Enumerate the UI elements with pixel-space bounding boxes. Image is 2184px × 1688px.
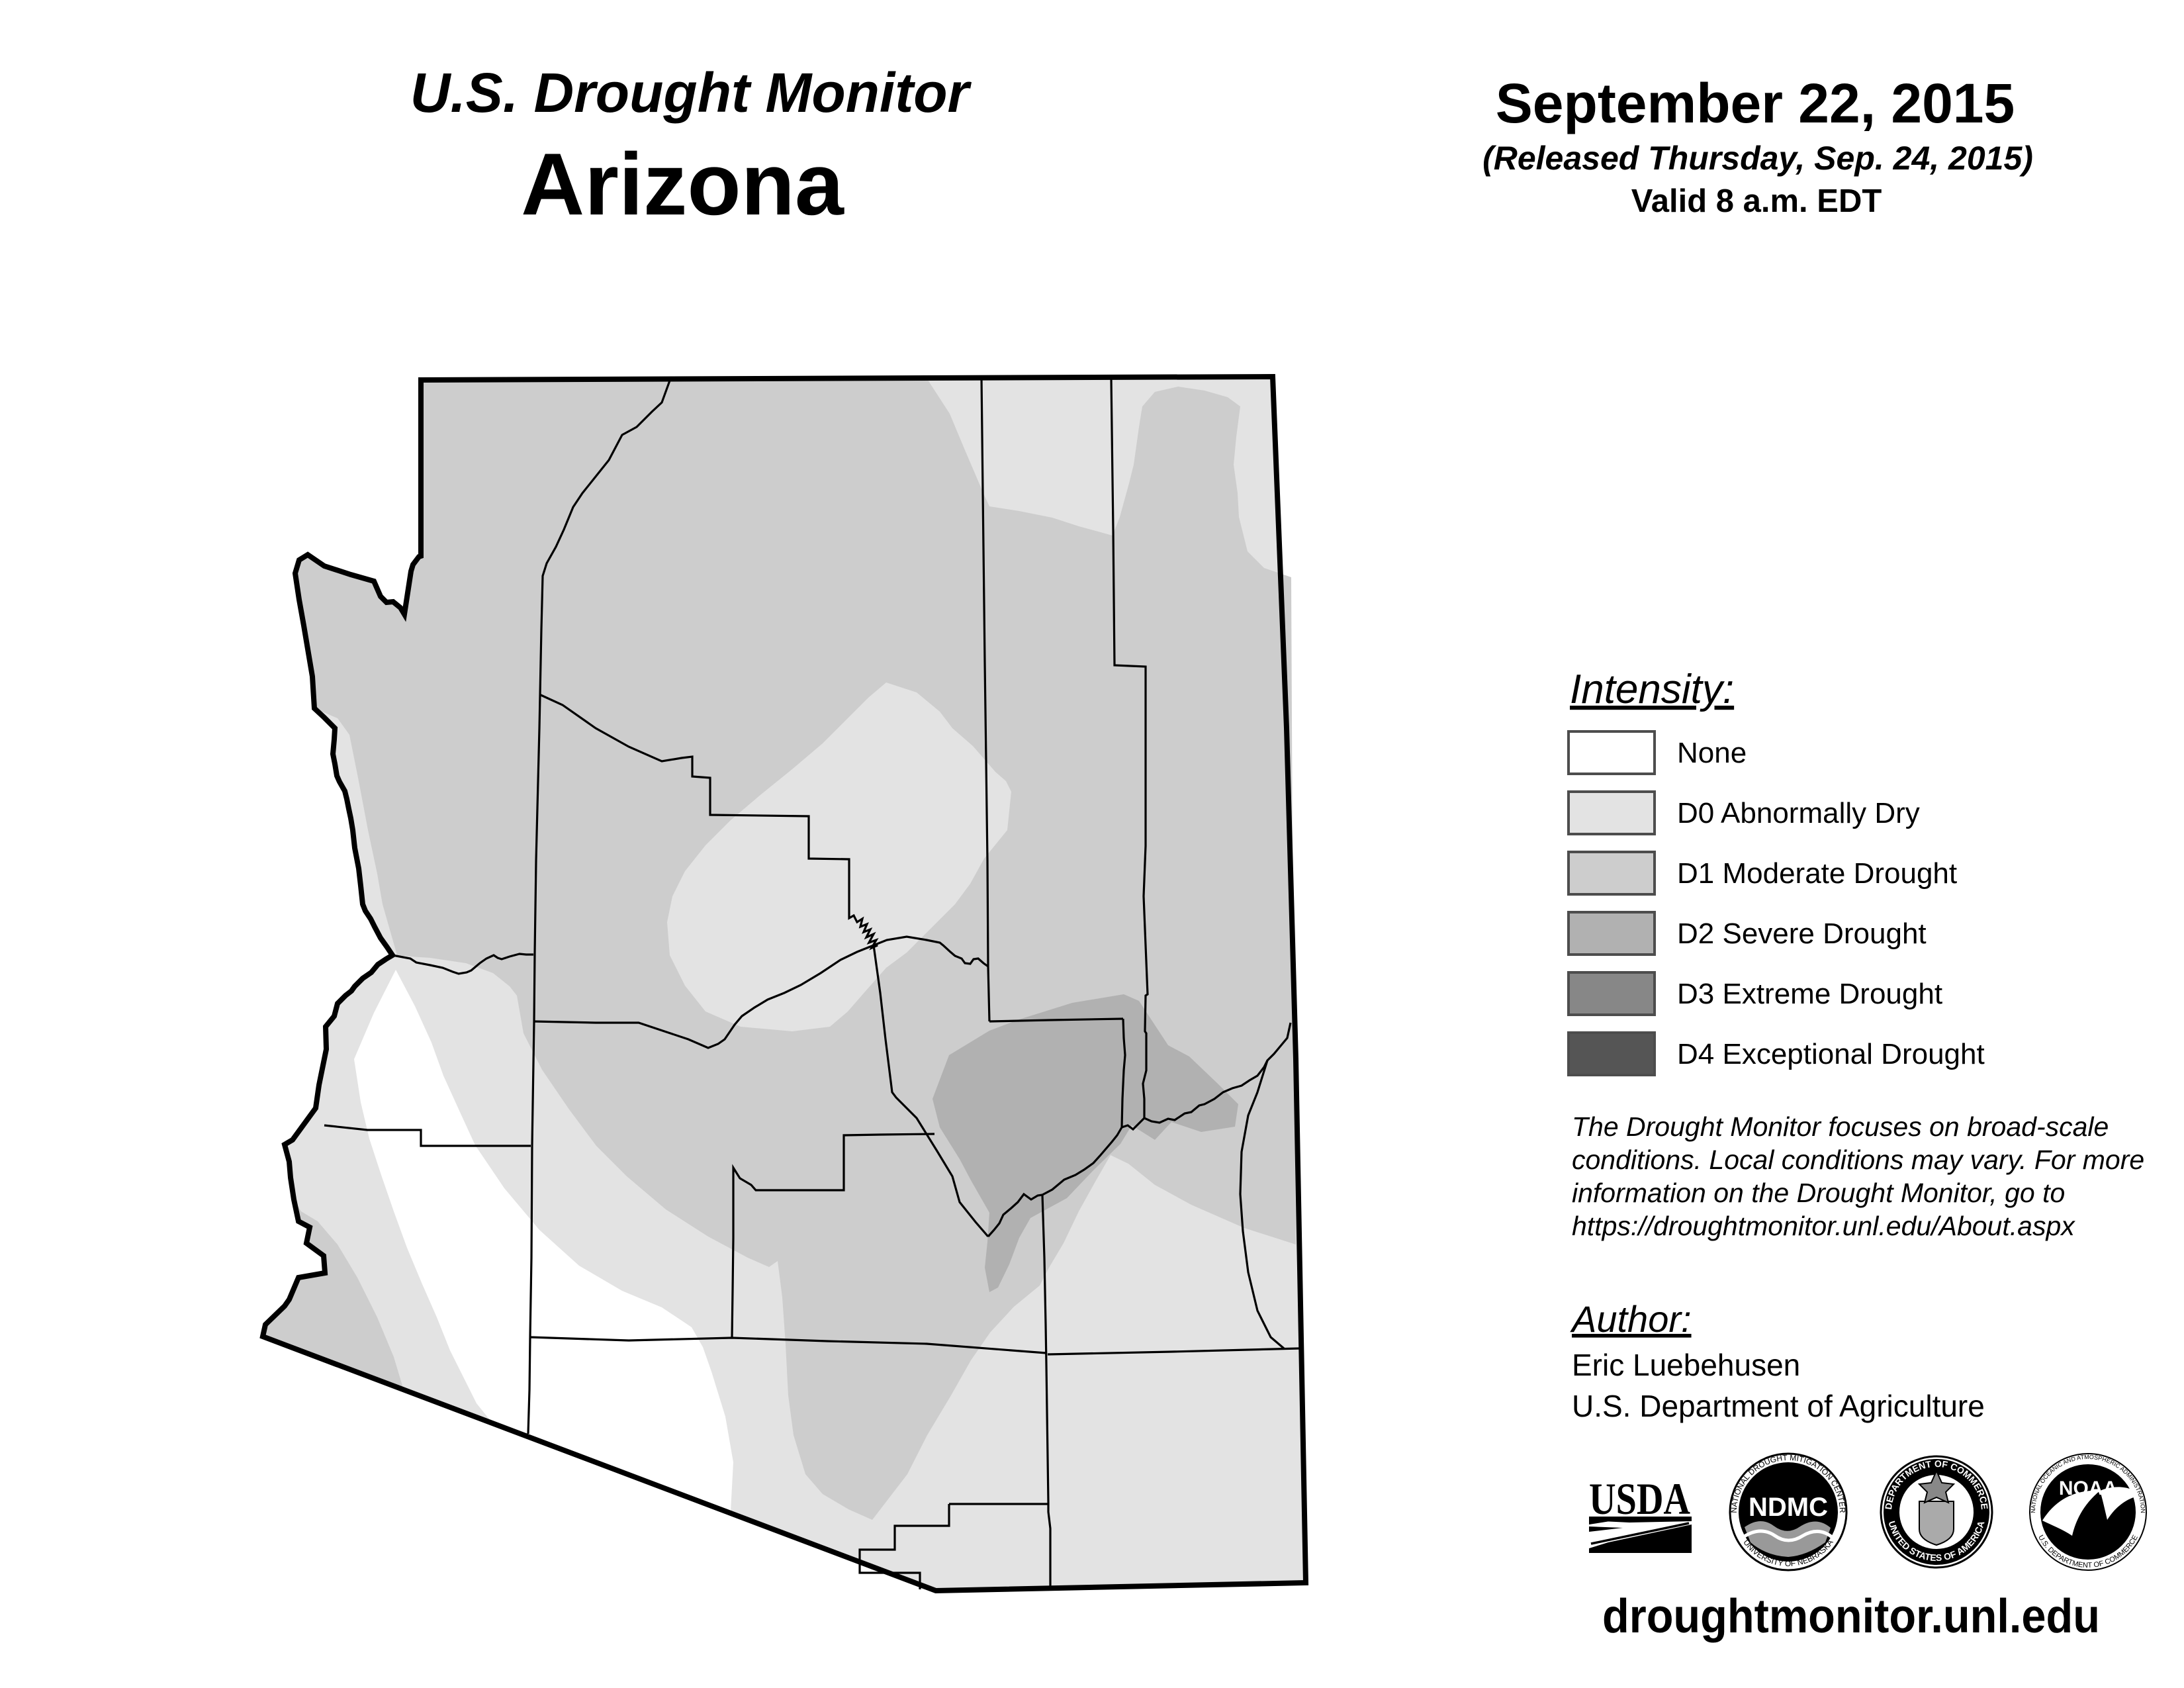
svg-text:Valid 8 a.m. EDT: Valid 8 a.m. EDT <box>1631 183 1882 219</box>
svg-text:None: None <box>1677 737 1747 769</box>
svg-text:NDMC: NDMC <box>1749 1493 1828 1522</box>
svg-text:Eric Luebehusen: Eric Luebehusen <box>1572 1348 1800 1382</box>
svg-text:conditions. Local conditions m: conditions. Local conditions may vary. F… <box>1572 1145 2144 1175</box>
svg-text:Author:: Author: <box>1570 1298 1692 1340</box>
svg-text:USDA: USDA <box>1589 1474 1690 1524</box>
svg-text:Arizona: Arizona <box>521 136 844 234</box>
svg-text:U.S. Department of Agriculture: U.S. Department of Agriculture <box>1572 1389 1985 1423</box>
svg-text:U.S. Drought Monitor: U.S. Drought Monitor <box>410 62 972 124</box>
svg-text:D2 Severe Drought: D2 Severe Drought <box>1677 917 1927 950</box>
svg-text:(Released Thursday, Sep. 24, 2: (Released Thursday, Sep. 24, 2015) <box>1482 140 2033 177</box>
svg-text:September 22, 2015: September 22, 2015 <box>1496 72 2015 134</box>
svg-text:D0 Abnormally Dry: D0 Abnormally Dry <box>1677 797 1920 829</box>
svg-text:https://droughtmonitor.unl.edu: https://droughtmonitor.unl.edu/About.asp… <box>1572 1211 2075 1241</box>
svg-text:D1 Moderate Drought: D1 Moderate Drought <box>1677 857 1957 890</box>
svg-text:D3 Extreme Drought: D3 Extreme Drought <box>1677 978 1942 1010</box>
svg-text:The Drought Monitor focuses on: The Drought Monitor focuses on broad-sca… <box>1572 1111 2109 1142</box>
svg-text:Intensity:: Intensity: <box>1570 667 1734 712</box>
svg-text:information on the Drought Mon: information on the Drought Monitor, go t… <box>1572 1178 2065 1208</box>
svg-text:D4 Exceptional Drought: D4 Exceptional Drought <box>1677 1038 1985 1070</box>
svg-text:NOAA: NOAA <box>2059 1477 2117 1499</box>
svg-text:droughtmonitor.unl.edu: droughtmonitor.unl.edu <box>1602 1590 2100 1643</box>
